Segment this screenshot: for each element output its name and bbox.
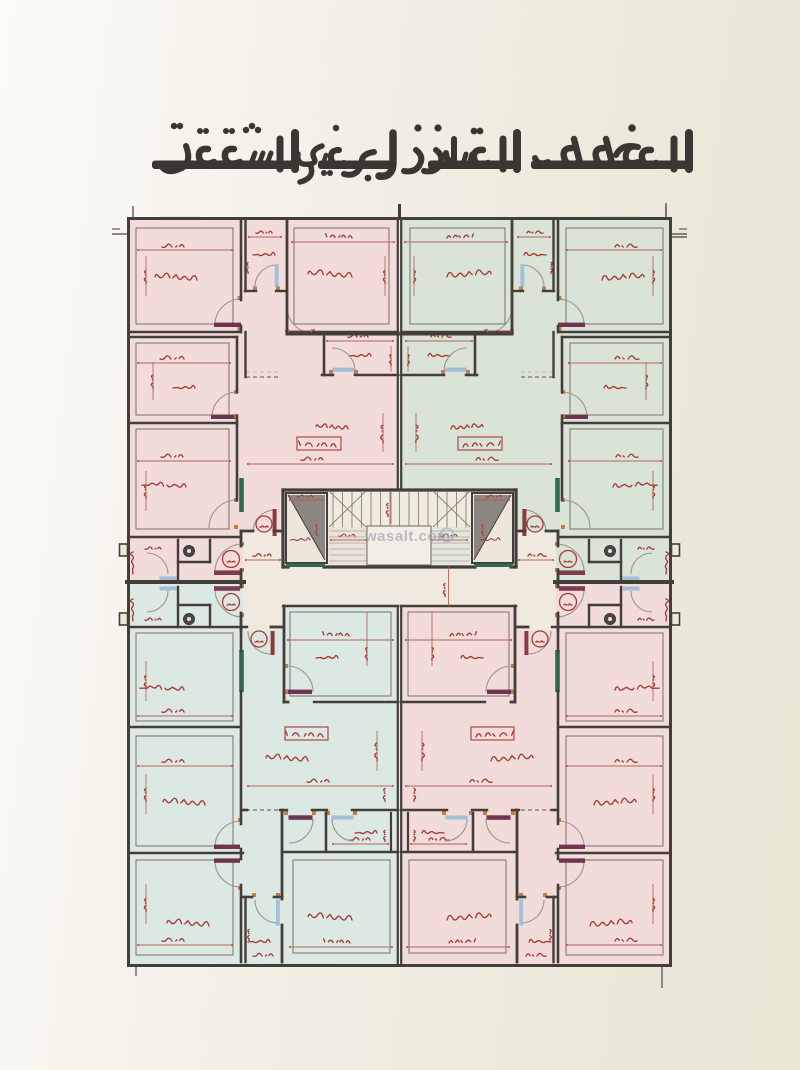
svg-text:wasalt.com: wasalt.com bbox=[364, 528, 451, 545]
